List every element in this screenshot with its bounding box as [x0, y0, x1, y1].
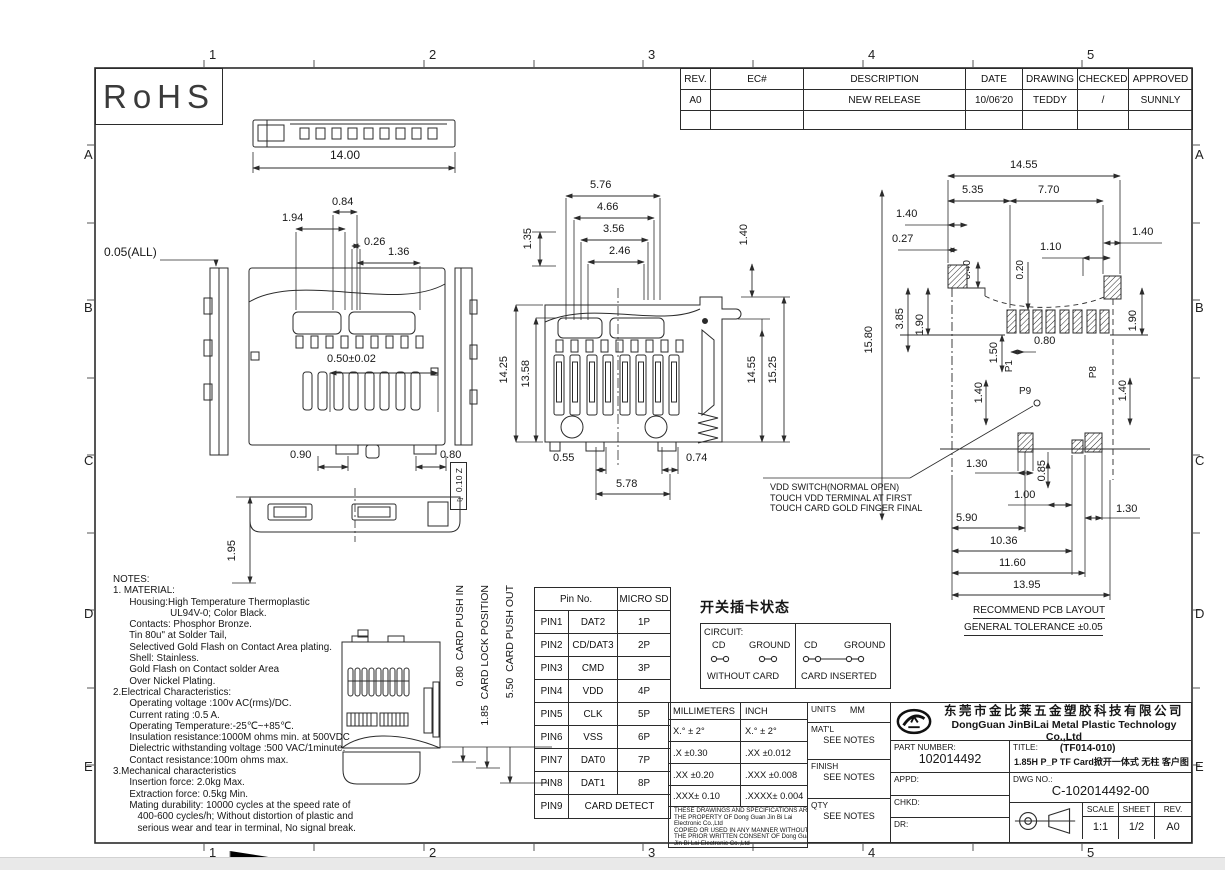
pin-table-header: Pin No. — [535, 588, 618, 611]
grid-row-label: C — [84, 453, 93, 468]
rev-cell — [711, 90, 804, 111]
grid-row-label: D — [1195, 606, 1204, 621]
cd-label: CD — [804, 640, 817, 650]
cd-label: CD — [712, 640, 725, 650]
rev-cell: 10/06'20 — [966, 90, 1023, 111]
table-cell: PIN5 — [535, 703, 569, 726]
rohs-mark: RoHS — [95, 68, 223, 125]
dwg-no-label: DWG NO.: — [1010, 773, 1191, 783]
table-cell: X.° ± 2° — [741, 720, 808, 742]
table-cell: CLK — [569, 703, 618, 726]
rev-cell: NEW RELEASE — [804, 90, 966, 111]
table-cell: CD/DAT3 — [569, 634, 618, 657]
rev-cell — [966, 111, 1023, 130]
company-name-en: DongGuan JinBiLai Metal Plastic Technolo… — [937, 719, 1191, 743]
rev-header-cell: DRAWING — [1023, 69, 1078, 90]
switch-status-title: 开关插卡状态 — [700, 597, 790, 617]
table-cell: DAT0 — [569, 749, 618, 772]
table-cell: 2P — [618, 634, 671, 657]
company-name-cn: 东莞市金比莱五金塑胶科技有限公司 — [937, 700, 1191, 719]
card-inserted-label: CARD INSERTED — [801, 671, 877, 681]
table-cell: CMD — [569, 657, 618, 680]
grid-col-label: 3 — [648, 47, 655, 62]
table-cell: PIN6 — [535, 726, 569, 749]
rohs-label: RoHS — [103, 78, 215, 116]
switch-state-without-card: CIRCUIT: CD GROUND WITHOUT CARD — [700, 623, 796, 689]
drawing-title-line1: (TF014-010) — [1060, 743, 1116, 754]
rev-cell — [681, 111, 711, 130]
grid-row-label: A — [84, 147, 93, 162]
rev-cell — [1078, 111, 1129, 130]
finish-label: FINISH — [808, 760, 890, 770]
grid-col-label: 5 — [1087, 47, 1094, 62]
table-cell: CARD DETECT — [569, 795, 671, 819]
rev-value: A0 — [1155, 817, 1191, 838]
rev-label: REV. — [1155, 803, 1191, 817]
revision-table: REV. EC# DESCRIPTION DATE DRAWING CHECKE… — [680, 68, 1193, 130]
table-cell: PIN4 — [535, 680, 569, 703]
drawing-title-line2: 1.85H P_P TF Card掀开一体式 无柱 客户图 — [1010, 755, 1191, 768]
scale-label: SCALE — [1083, 803, 1118, 817]
table-cell: PIN2 — [535, 634, 569, 657]
rev-header-cell: DESCRIPTION — [804, 69, 966, 90]
units-label: UNITS — [808, 703, 836, 713]
without-card-label: WITHOUT CARD — [707, 671, 779, 681]
notes-block: NOTES: 1. MATERIAL: Housing:High Tempera… — [113, 574, 356, 834]
rev-cell: TEDDY — [1023, 90, 1078, 111]
rev-cell: / — [1078, 90, 1129, 111]
vdd-switch-note: VDD SWITCH(NORMAL OPEN) TOUCH VDD TERMIN… — [770, 482, 922, 514]
title-block: 东莞市金比莱五金塑胶科技有限公司 DongGuan JinBiLai Metal… — [890, 702, 1192, 843]
grid-row-label: B — [1195, 300, 1204, 315]
title-label: TITLE: — [1010, 741, 1038, 754]
rev-cell — [711, 111, 804, 130]
table-cell: 5P — [618, 703, 671, 726]
dwg-no-value: C-102014492-00 — [1010, 783, 1191, 798]
rev-header-cell: CHECKED — [1078, 69, 1129, 90]
rev-cell: A0 — [681, 90, 711, 111]
qty-value: SEE NOTES — [808, 809, 890, 821]
rev-cell — [1129, 111, 1193, 130]
matl-label: MAT'L — [808, 723, 890, 733]
finish-value: SEE NOTES — [808, 770, 890, 782]
grid-row-label: E — [84, 759, 93, 774]
grid-col-label: 1 — [209, 47, 216, 62]
switch-state-card-inserted: CD GROUND CARD INSERTED — [795, 623, 891, 689]
flatness-callout: ▱ 0.10 Z — [450, 462, 467, 510]
grid-row-label: B — [84, 300, 93, 315]
table-cell: .X ±0.30 — [669, 742, 741, 764]
drawing-disclaimer: THESE DRAWINGS AND SPECIFICATIONS ARE TH… — [673, 807, 807, 847]
table-cell: .XX ±0.20 — [669, 764, 741, 786]
rev-cell — [1023, 111, 1078, 130]
tol-header: MILLIMETERS — [669, 703, 741, 720]
table-cell: PIN3 — [535, 657, 569, 680]
sheet-value: 1/2 — [1119, 817, 1154, 838]
circuit-label: CIRCUIT: — [704, 627, 743, 637]
table-cell: 1P — [618, 611, 671, 634]
table-cell: VSS — [569, 726, 618, 749]
engineering-drawing-page: { "grid": {"cols": ["1","2","3","4","5"]… — [0, 0, 1225, 869]
dr-label: DR: — [891, 818, 1009, 828]
pin-table-header: MICRO SD — [618, 588, 671, 611]
part-number-label: PART NUMBER: — [891, 741, 1009, 751]
table-cell: X.° ± 2° — [669, 720, 741, 742]
rev-cell: SUNNLY — [1129, 90, 1193, 111]
part-number-value: 102014492 — [891, 752, 1009, 766]
sheet-label: SHEET — [1119, 803, 1154, 817]
appd-label: APPD: — [891, 773, 1009, 783]
window-bottom-band — [0, 857, 1225, 870]
pcb-tolerance-caption: GENERAL TOLERANCE ±0.05 — [964, 622, 1103, 636]
table-cell: .XXXX± 0.004 — [741, 786, 808, 807]
pcb-caption: RECOMMEND PCB LAYOUT — [973, 605, 1105, 619]
rev-header-cell: REV. — [681, 69, 711, 90]
ground-label: GROUND — [749, 640, 790, 650]
rev-cell — [804, 111, 966, 130]
rev-header-cell: DATE — [966, 69, 1023, 90]
units-value: MM — [850, 703, 865, 715]
tol-header: INCH — [741, 703, 808, 720]
grid-row-label: C — [1195, 453, 1204, 468]
table-cell: DAT2 — [569, 611, 618, 634]
company-logo — [891, 707, 937, 736]
flatness-value: ▱ 0.10 Z — [454, 468, 464, 504]
table-cell: PIN9 — [535, 795, 569, 819]
grid-row-label: E — [1195, 759, 1204, 774]
chkd-label: CHKD: — [891, 796, 1009, 806]
ground-label: GROUND — [844, 640, 885, 650]
tolerance-table: MILLIMETERS INCH X.° ± 2°X.° ± 2° .X ±0.… — [668, 702, 808, 848]
grid-col-label: 4 — [868, 47, 875, 62]
table-cell: PIN7 — [535, 749, 569, 772]
rev-header-cell: APPROVED — [1129, 69, 1193, 90]
table-cell: .XX ±0.012 — [741, 742, 808, 764]
table-cell: 8P — [618, 772, 671, 795]
grid-col-label: 2 — [429, 47, 436, 62]
table-cell: .XXX± 0.10 — [669, 786, 741, 807]
table-cell: .XXX ±0.008 — [741, 764, 808, 786]
table-cell: PIN8 — [535, 772, 569, 795]
table-cell: 7P — [618, 749, 671, 772]
table-cell: 4P — [618, 680, 671, 703]
scale-value: 1:1 — [1083, 817, 1118, 838]
table-cell: PIN1 — [535, 611, 569, 634]
table-cell: 6P — [618, 726, 671, 749]
rev-header-cell: EC# — [711, 69, 804, 90]
pin-table: Pin No. MICRO SD PIN1DAT21P PIN2CD/DAT32… — [534, 587, 671, 819]
qty-label: QTY — [808, 799, 890, 809]
grid-row-label: D — [84, 606, 93, 621]
grid-row-label: A — [1195, 147, 1204, 162]
table-cell: DAT1 — [569, 772, 618, 795]
table-cell: 3P — [618, 657, 671, 680]
projection-symbol — [1010, 803, 1083, 839]
matl-value: SEE NOTES — [808, 733, 890, 745]
table-cell: VDD — [569, 680, 618, 703]
units-block: UNITS MM MAT'L SEE NOTES FINISH SEE NOTE… — [807, 702, 891, 843]
